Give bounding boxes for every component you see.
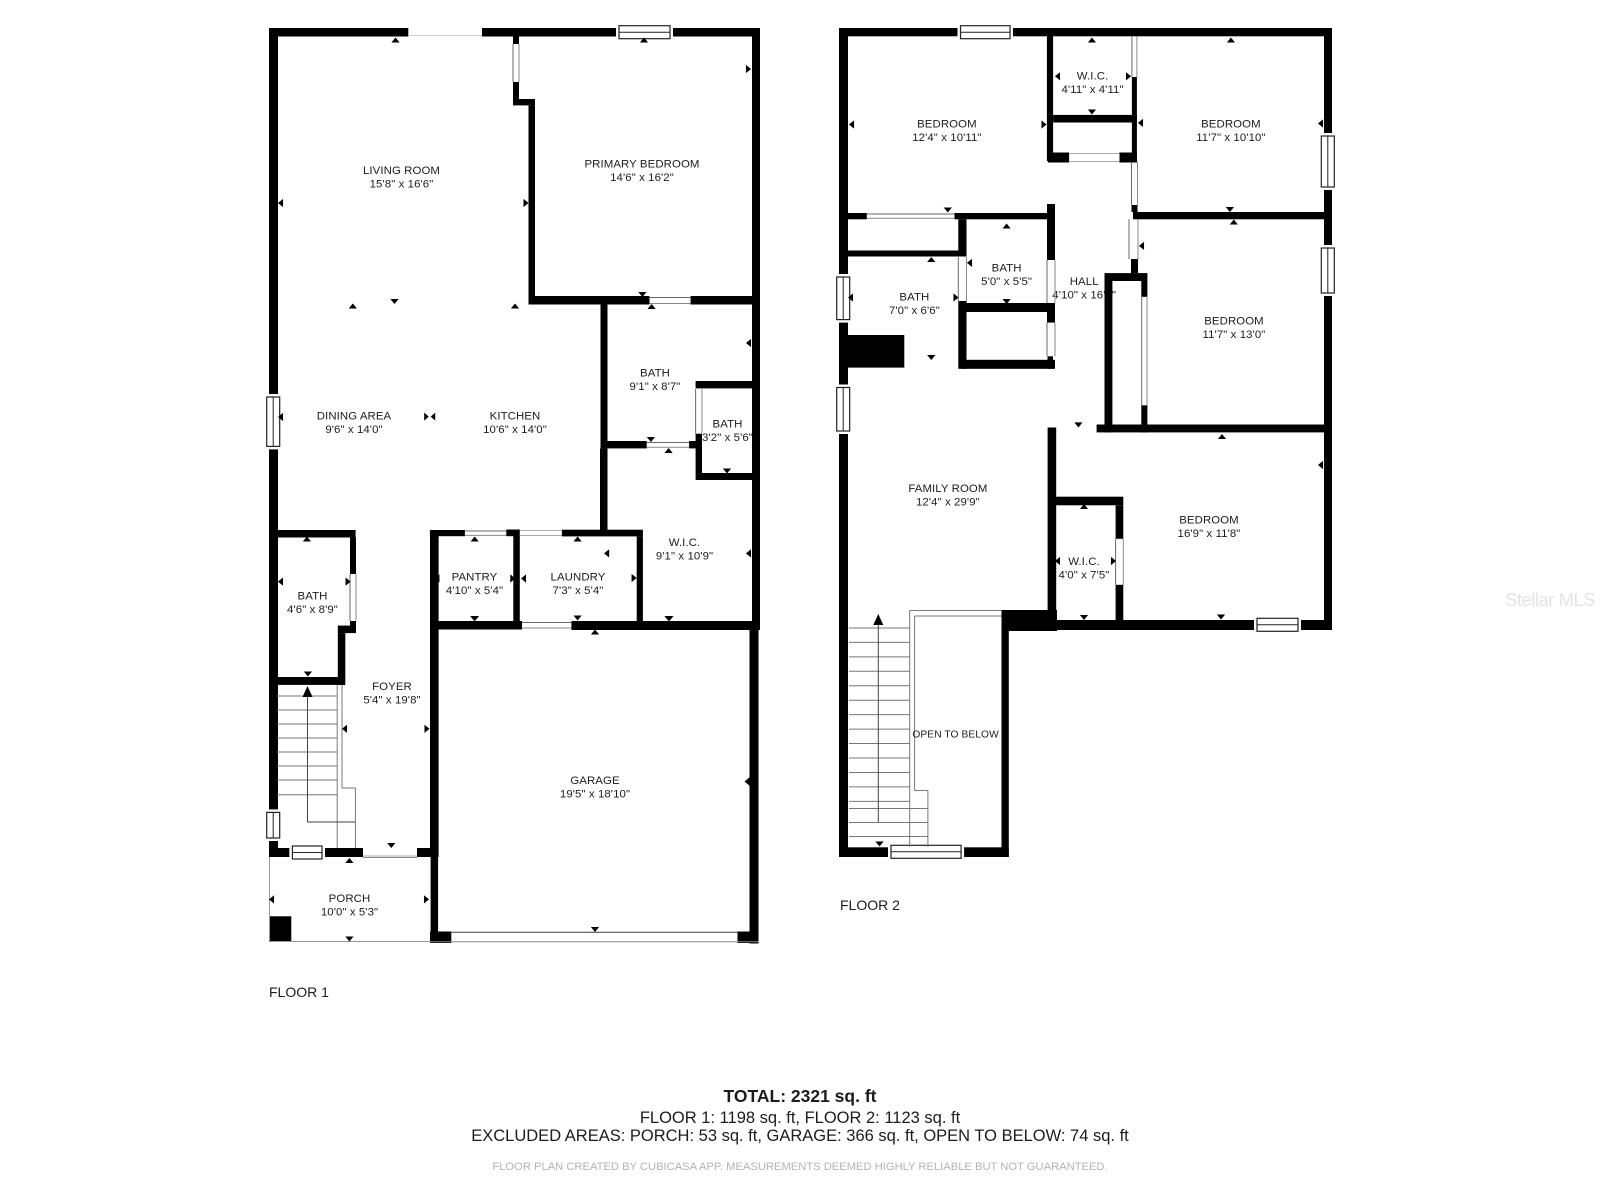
svg-text:DINING AREA: DINING AREA bbox=[317, 411, 392, 423]
svg-text:BATH: BATH bbox=[713, 419, 743, 431]
svg-text:19'5" x 18'10": 19'5" x 18'10" bbox=[560, 789, 630, 801]
svg-text:BATH: BATH bbox=[298, 591, 328, 603]
svg-text:EXCLUDED AREAS: PORCH: 53 sq.: EXCLUDED AREAS: PORCH: 53 sq. ft, GARAGE… bbox=[471, 1127, 1129, 1145]
svg-text:FAMILY ROOM: FAMILY ROOM bbox=[908, 483, 987, 495]
svg-text:FOYER: FOYER bbox=[372, 681, 412, 693]
svg-text:W.I.C.: W.I.C. bbox=[1068, 556, 1100, 568]
svg-text:FLOOR 1: 1198 sq. ft, FLOOR 2:: FLOOR 1: 1198 sq. ft, FLOOR 2: 1123 sq. … bbox=[640, 1109, 961, 1127]
svg-text:4'6" x 8'9": 4'6" x 8'9" bbox=[287, 604, 338, 616]
svg-text:9'1" x 10'9": 9'1" x 10'9" bbox=[656, 551, 713, 563]
svg-text:BATH: BATH bbox=[992, 263, 1022, 275]
svg-text:BEDROOM: BEDROOM bbox=[917, 119, 977, 131]
svg-text:4'0" x 7'5": 4'0" x 7'5" bbox=[1059, 570, 1110, 582]
svg-text:PRIMARY BEDROOM: PRIMARY BEDROOM bbox=[584, 159, 699, 171]
svg-text:3'2" x 5'6": 3'2" x 5'6" bbox=[702, 432, 753, 444]
svg-text:15'8" x 16'6": 15'8" x 16'6" bbox=[370, 179, 434, 191]
svg-text:OPEN TO BELOW: OPEN TO BELOW bbox=[912, 730, 999, 741]
svg-text:10'6" x 14'0": 10'6" x 14'0" bbox=[483, 424, 547, 436]
svg-text:BEDROOM: BEDROOM bbox=[1204, 316, 1264, 328]
svg-text:BATH: BATH bbox=[899, 292, 929, 304]
svg-text:9'6" x 14'0": 9'6" x 14'0" bbox=[325, 424, 382, 436]
svg-text:7'0" x 6'6": 7'0" x 6'6" bbox=[889, 305, 940, 317]
svg-text:11'7" x 13'0": 11'7" x 13'0" bbox=[1203, 329, 1266, 341]
svg-text:FLOOR 2: FLOOR 2 bbox=[840, 897, 900, 913]
svg-text:KITCHEN: KITCHEN bbox=[490, 411, 541, 423]
svg-text:5'4" x 19'8": 5'4" x 19'8" bbox=[363, 695, 420, 707]
svg-text:FLOOR PLAN CREATED BY CUBICASA: FLOOR PLAN CREATED BY CUBICASA APP. MEAS… bbox=[492, 1161, 1107, 1173]
svg-text:9'1" x 8'7": 9'1" x 8'7" bbox=[630, 381, 681, 393]
svg-text:PANTRY: PANTRY bbox=[452, 572, 498, 584]
svg-text:BEDROOM: BEDROOM bbox=[1201, 119, 1261, 131]
svg-text:10'0" x 5'3": 10'0" x 5'3" bbox=[321, 907, 378, 919]
svg-text:FLOOR 1: FLOOR 1 bbox=[269, 984, 329, 1000]
svg-text:5'0" x 5'5": 5'0" x 5'5" bbox=[981, 276, 1032, 288]
svg-text:W.I.C.: W.I.C. bbox=[1077, 71, 1109, 83]
svg-text:16'9" x 11'8": 16'9" x 11'8" bbox=[1178, 528, 1241, 540]
svg-text:BEDROOM: BEDROOM bbox=[1179, 515, 1239, 527]
svg-text:BATH: BATH bbox=[640, 368, 670, 380]
svg-text:W.I.C.: W.I.C. bbox=[669, 537, 701, 549]
svg-text:LAUNDRY: LAUNDRY bbox=[551, 572, 606, 584]
svg-text:HALL: HALL bbox=[1070, 276, 1099, 288]
svg-text:TOTAL: 2321 sq. ft: TOTAL: 2321 sq. ft bbox=[724, 1086, 877, 1106]
svg-text:4'10" x 5'4": 4'10" x 5'4" bbox=[446, 585, 503, 597]
svg-text:12'4" x 10'11": 12'4" x 10'11" bbox=[912, 132, 981, 144]
svg-text:7'3" x 5'4": 7'3" x 5'4" bbox=[553, 585, 604, 597]
svg-text:PORCH: PORCH bbox=[329, 893, 371, 905]
svg-text:GARAGE: GARAGE bbox=[570, 775, 620, 787]
svg-text:11'7" x 10'10": 11'7" x 10'10" bbox=[1196, 132, 1265, 144]
svg-text:LIVING ROOM: LIVING ROOM bbox=[363, 165, 440, 177]
svg-text:12'4" x 29'9": 12'4" x 29'9" bbox=[916, 497, 980, 509]
svg-text:4'11" x 4'11": 4'11" x 4'11" bbox=[1062, 84, 1124, 96]
svg-text:14'6" x 16'2": 14'6" x 16'2" bbox=[610, 172, 674, 184]
svg-text:Stellar MLS: Stellar MLS bbox=[1505, 589, 1595, 610]
